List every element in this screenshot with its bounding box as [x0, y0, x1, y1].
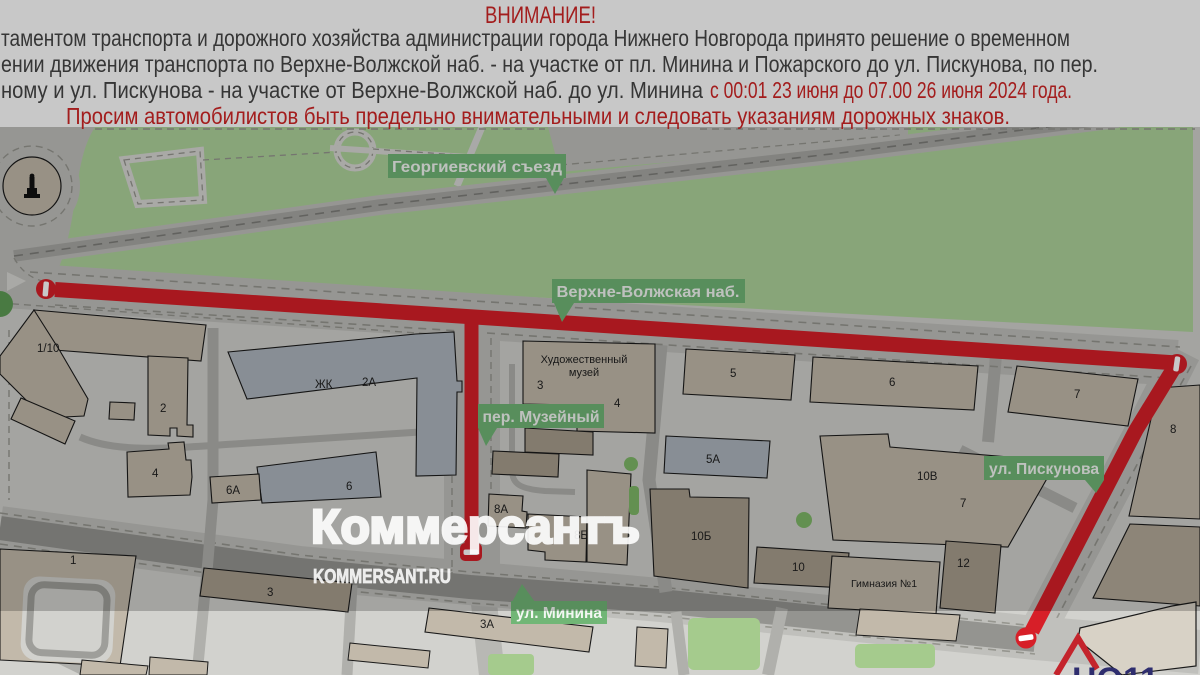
svg-text:3А: 3А [480, 619, 494, 631]
svg-text:НО11: НО11 [1072, 661, 1159, 675]
svg-text:Коммерсантъ: Коммерсантъ [311, 501, 640, 554]
svg-text:KOMMERSANT.RU: KOMMERSANT.RU [313, 566, 451, 588]
